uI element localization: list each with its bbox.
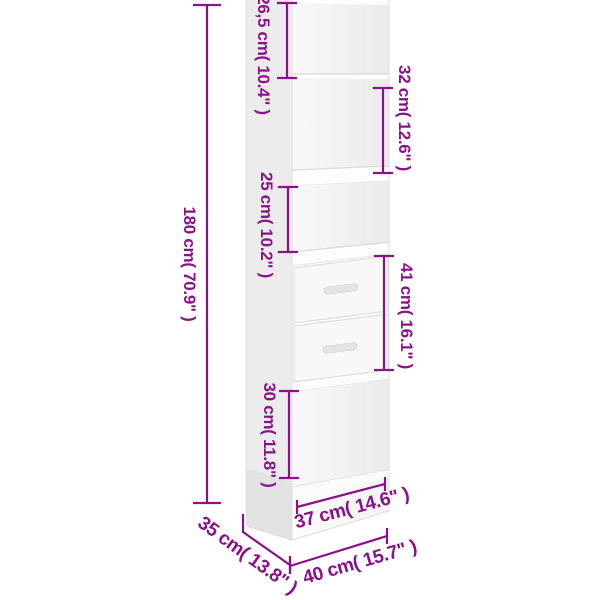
compartment-bottom [292, 379, 389, 487]
drawer-section-dimension-label: 41 cm( 16.1" ) [396, 263, 416, 369]
second-section-dimension-label: 32 cm( 12.6" ) [394, 65, 414, 171]
third-section-dimension-label: 25 cm( 10.2" ) [256, 172, 276, 278]
height-dimension-label: 180 cm( 70.9" ) [179, 206, 199, 321]
compartment-third [292, 181, 389, 252]
bottom-section-dimension-label: 30 cm( 11.8" ) [259, 383, 279, 488]
top-section-dimension-label: 26,5 cm( 10.4" ) [253, 0, 273, 115]
compartment-top [292, 3, 389, 74]
compartment-second [292, 80, 389, 170]
product-dimension-diagram: 180 cm( 70.9" ) 26,5 cm( 10.4" ) 32 cm( … [0, 0, 600, 600]
